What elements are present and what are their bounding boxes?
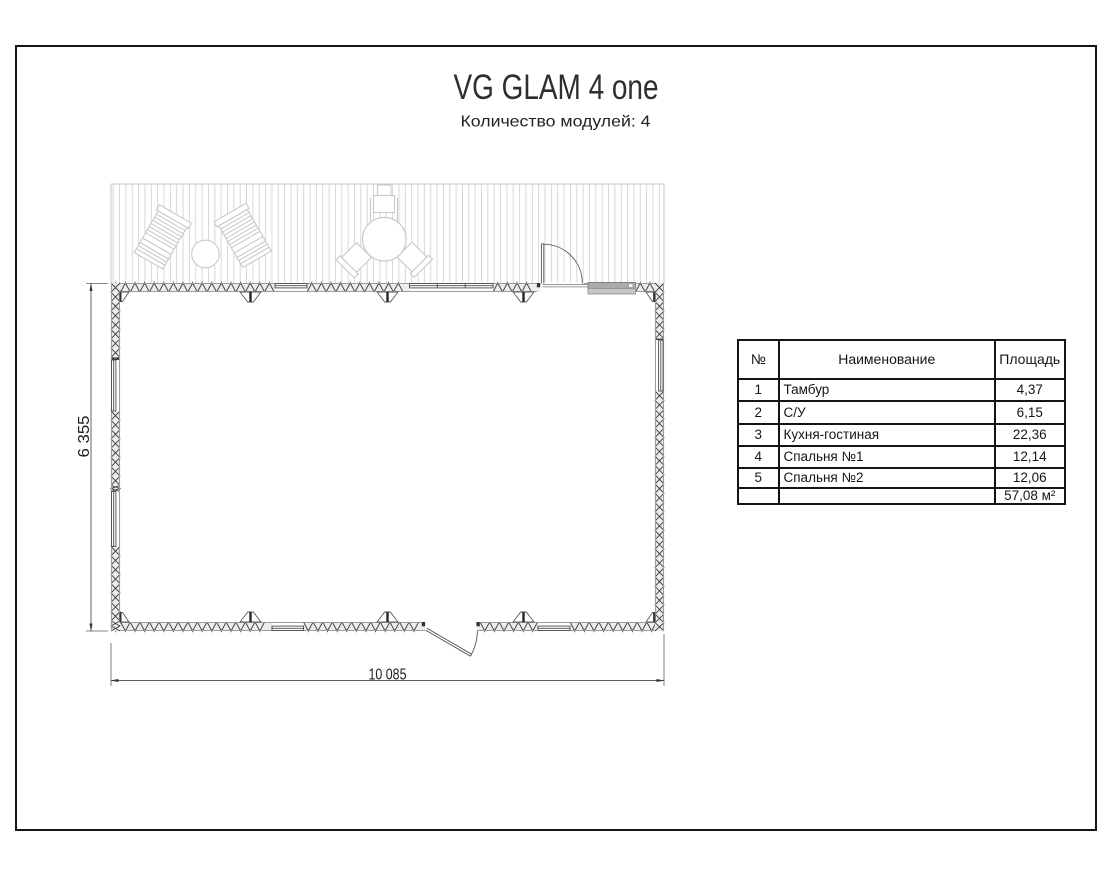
svg-text:6 355: 6 355 (76, 416, 93, 458)
svg-text:10 085: 10 085 (369, 666, 407, 683)
